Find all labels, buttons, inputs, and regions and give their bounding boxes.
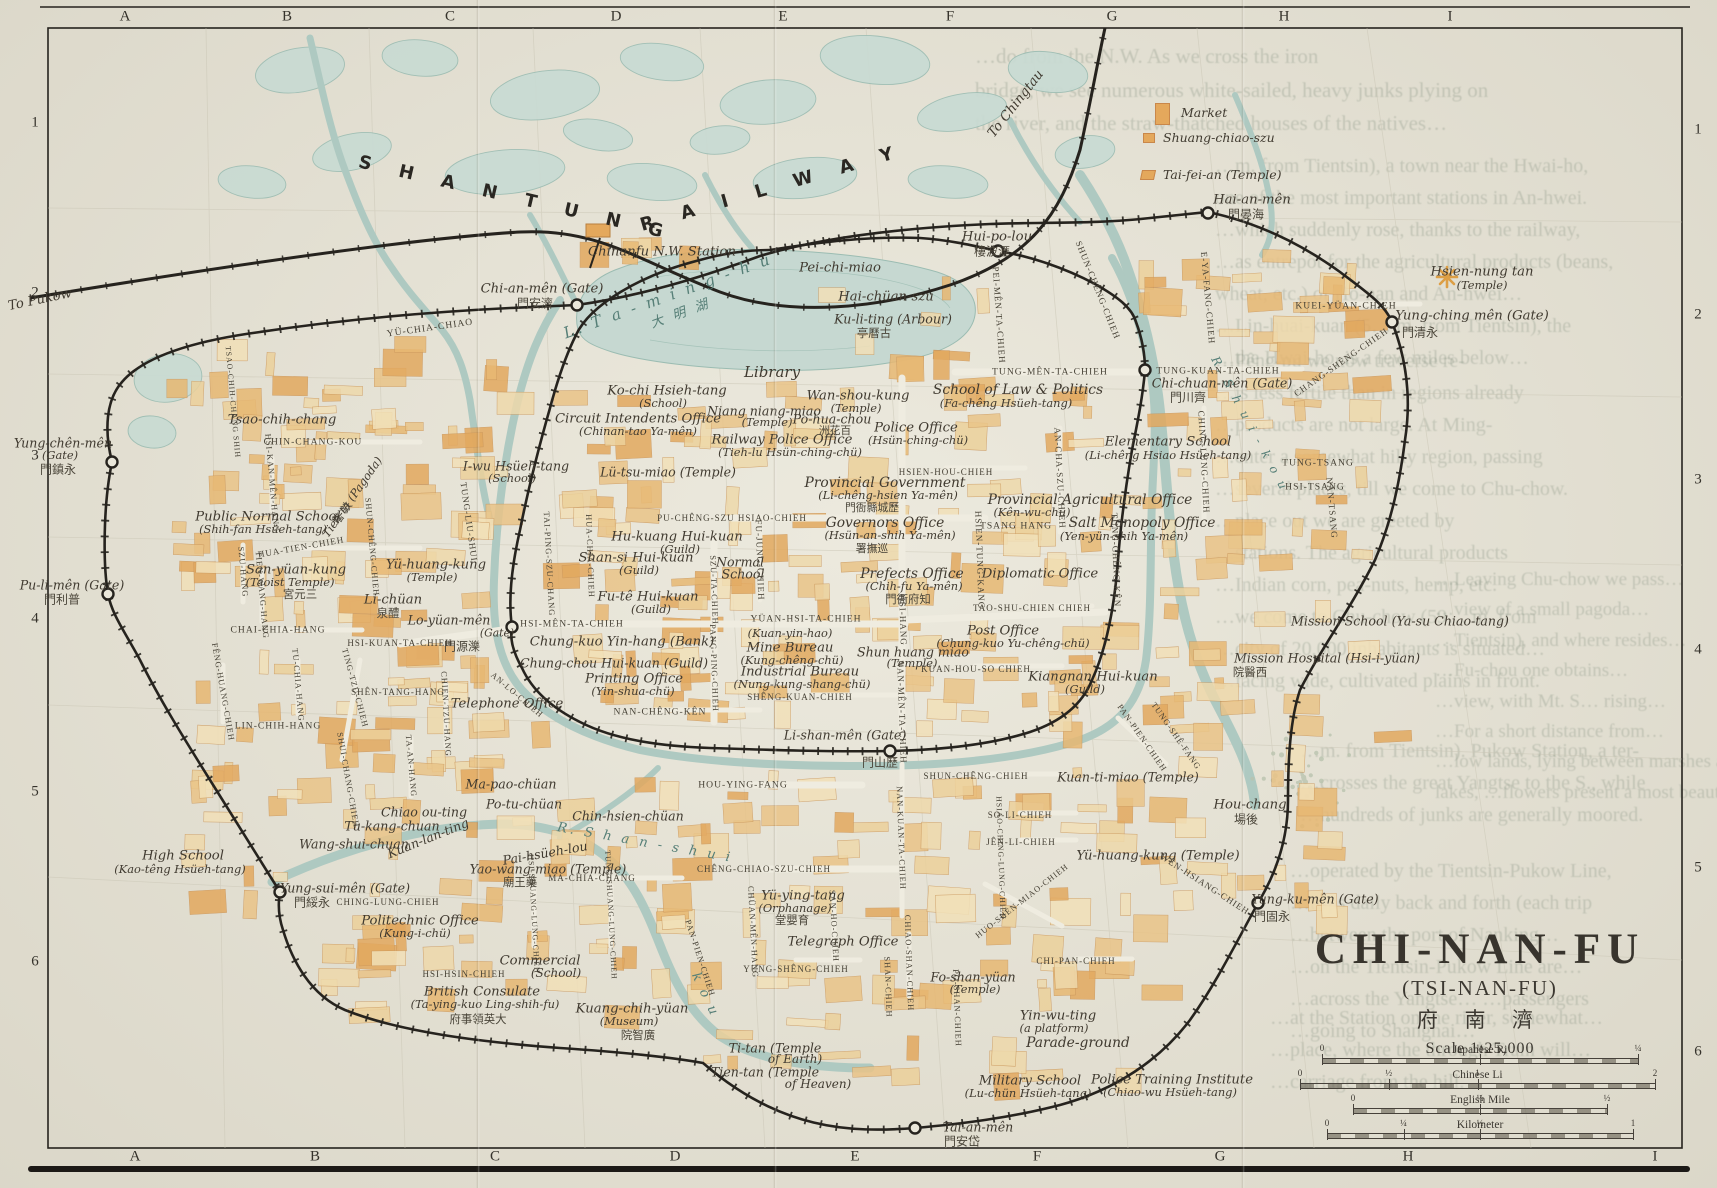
street-label: NAN-CHÊNG-KÊN [614, 707, 707, 718]
street-label: HSI-HSIN-CHIEH [423, 969, 506, 979]
scale-bar-value: ¼ [1477, 1093, 1484, 1103]
map-subtitle: (TSI-NAN-FU) [1290, 976, 1670, 1001]
grid-number: 2 [1694, 307, 1702, 324]
grid-letter: A [120, 9, 131, 26]
grid-letter: D [670, 1149, 681, 1166]
grid-letter: D [611, 9, 622, 26]
place-label: Ku-li-ting (Arbour) [834, 312, 952, 327]
scale-bar-tick [1322, 1054, 1323, 1065]
place-label: Library [744, 363, 800, 381]
temple-square-icon [1143, 133, 1155, 143]
scale-bar-tick [1607, 1104, 1608, 1115]
cjk-label: 門固永 [1254, 908, 1290, 925]
place-label: (Temple) [1457, 278, 1508, 292]
scale-bar-value: ¼ [1635, 1043, 1642, 1053]
scale-bar-tick [1655, 1079, 1656, 1090]
place-label: (Kuan-yin-hao) [748, 626, 833, 640]
street-label: SHÊNG-KUAN-CHIEH [747, 692, 853, 702]
grid-letter: H [1403, 1149, 1414, 1166]
scale-bar-value: 0 [1320, 1043, 1325, 1053]
market-building-icon [1155, 103, 1170, 125]
cjk-label: 門安濟 [517, 295, 553, 312]
street-label: MA-CHIA-CHANG [548, 873, 636, 883]
grid-number: 4 [1694, 642, 1702, 659]
street-label: HSIEN-HOU-CHIEH [899, 467, 994, 477]
scale-bar-value: 0 [1325, 1118, 1330, 1128]
place-label: (Nung-kung-shang-chü) [734, 677, 871, 691]
grid-letter: H [1279, 9, 1290, 26]
scale-bar-value: 0 [1298, 1068, 1303, 1078]
scale-bar-tick [1480, 1104, 1481, 1115]
cjk-label: 門晏海 [1228, 206, 1264, 223]
place-label: (Ta-ying-kuo Ling-shih-fu) [411, 997, 560, 1011]
place-label: (Guild) [1065, 682, 1105, 696]
scale-bar-tick [1327, 1129, 1328, 1140]
street-label: KUAN-HOU-SO CHIEH [921, 664, 1031, 674]
street-label: HSI-HANG [897, 594, 909, 646]
scale-bar-tick [1404, 1129, 1405, 1140]
scale-bar-value: 0 [1351, 1093, 1356, 1103]
street-label: LIN-CHIH-HANG [235, 721, 322, 732]
grid-number: 5 [31, 784, 39, 801]
legend-label: Shuang-chiao-szu [1163, 130, 1275, 145]
grid-number: 3 [31, 448, 39, 465]
scale-bar-value: ¼ [1400, 1118, 1407, 1128]
scale-bar-value: ⅛ [1477, 1043, 1484, 1053]
scale-bar-value: ½ [1477, 1118, 1484, 1128]
place-label: (Temple) [742, 415, 793, 429]
cjk-label: 泉醴 [377, 605, 400, 621]
place-label: (Yen-yün-shih Ya-mên) [1060, 529, 1188, 543]
place-label: (Guild) [619, 563, 659, 577]
place-label: Yü-huang-kung (Temple) [1076, 849, 1239, 864]
place-label: Ma-pao-chüan [466, 777, 557, 792]
place-label: (Museum) [600, 1014, 659, 1028]
cjk-label: 宮元三 [283, 586, 317, 602]
place-label: (Li-chêng Hsiao Hsüeh-tang) [1085, 448, 1251, 462]
place-label: (Chiao-wu Hsüeh-tang) [1103, 1085, 1237, 1099]
map-title-chinese: 府 南 濟 [1290, 1004, 1670, 1034]
cjk-label: 院智廣 [621, 1027, 655, 1043]
cjk-label: 門衙縣城歷 [845, 499, 899, 515]
place-label: (Fa-chêng Hsüeh-tang) [940, 396, 1072, 410]
place-label: Pei-chi-miao [799, 261, 881, 276]
scale-bar-tick [1638, 1054, 1639, 1065]
place-label: (Shih-fan Hsüeh-tang) [199, 522, 327, 536]
place-label: Parade-ground [1026, 1035, 1130, 1051]
scale-bar-value: 2 [1653, 1068, 1658, 1078]
scale-bar-tick [1478, 1079, 1479, 1090]
grid-letter: G [1107, 9, 1118, 26]
street-label: TUNG-MÊN-TA-CHIEH [992, 367, 1108, 378]
scale-bar-value: 1 [1631, 1118, 1636, 1128]
cjk-label: 門利普 [44, 591, 80, 608]
place-label: Kuan-ti-miao (Temple) [1057, 770, 1199, 785]
place-label: (Temple) [407, 570, 458, 584]
cjk-label: 樓波滙 [974, 243, 1010, 260]
place-label: (School) [531, 966, 581, 980]
place-label: (Kao-têng Hsüeh-tang) [114, 862, 246, 876]
street-label: PU-CHÊNG-SZU HSIAO-CHIEH [657, 513, 807, 523]
place-label: (Gate) [480, 627, 514, 640]
street-label: HSI-KUAN-TA-CHIEH [347, 638, 452, 648]
street-label: CHÊNG-CHIAO-SZU-CHIEH [697, 864, 831, 874]
cjk-label: 門清永 [1402, 324, 1438, 341]
street-label: TAO-SHU-CHIEN CHIEH [973, 603, 1091, 613]
place-label: (Guild) [631, 602, 671, 616]
grid-number: 4 [31, 611, 39, 628]
grid-number: 5 [1694, 860, 1702, 877]
temple-square-icon [1140, 170, 1156, 180]
place-label: Yung-ching mên (Gate) [1395, 309, 1548, 324]
grid-letter: C [445, 9, 455, 26]
scale-bar-tick [1480, 1129, 1481, 1140]
cjk-label: 堂嬰育 [775, 912, 809, 928]
place-label: (Kung-i-chü) [379, 926, 451, 940]
grid-number: 2 [31, 285, 39, 302]
scale-bar-tick [1353, 1104, 1354, 1115]
scale-bar-tick [1480, 1054, 1481, 1065]
map-title: CHI-NAN-FU [1290, 925, 1670, 974]
street-label: TUNG-TSANG [1282, 458, 1354, 469]
place-label: Telephone Office [451, 697, 564, 712]
place-label: (Tieh-lu Hsün-ching-chü) [718, 445, 862, 459]
street-label: SHUN-CHÊNG-CHIEH [924, 771, 1029, 781]
scale-bar-value: ½ [1385, 1068, 1392, 1078]
street-label: CHING-LUNG-CHIEH [337, 897, 440, 907]
street-label: CHI-PAN-CHIEH [1036, 956, 1115, 966]
place-label: Chung-chou Hui-kuan (Guild) [520, 656, 708, 671]
cjk-label: 府事領英大 [450, 1011, 507, 1027]
cjk-label: 場後 [1234, 811, 1258, 828]
grid-number: 1 [31, 115, 39, 132]
place-label: Chinanfu N.W. Station [588, 245, 736, 260]
street-label: HOU-YING-FANG [698, 780, 788, 791]
street-label: SHÊN-TANG-HANG [351, 687, 445, 697]
place-label: (Yin-shua-chü) [591, 684, 674, 698]
place-label: Lo-yüan-mên [408, 613, 491, 628]
cjk-label: 院醫西 [1233, 664, 1267, 680]
place-label: Mission School (Ya-su Chiao-tang) [1291, 614, 1509, 629]
grid-letter: C [490, 1149, 500, 1166]
cjk-label: 門山歷 [862, 754, 898, 771]
street-label: HSI-MÊN-TA-CHIEH [520, 619, 624, 630]
place-label: Lü-tsu-miao (Temple) [600, 465, 736, 480]
place-label: of Heaven) [785, 1077, 852, 1091]
place-label: Po-tu-chüan [486, 797, 562, 812]
grid-letter: I [1653, 1149, 1658, 1166]
scale-bar-tick [1300, 1079, 1301, 1090]
cjk-label: 門安岱 [944, 1133, 980, 1150]
grid-letter: F [1033, 1149, 1041, 1166]
grid-number: 3 [1694, 472, 1702, 489]
place-label: (Hsün-an-shih Ya-mên) [824, 528, 955, 542]
grid-letter: F [946, 9, 954, 26]
legend-label: Market [1181, 105, 1227, 120]
place-label: Chung-kuo Yin-hang (Bank) [530, 635, 715, 650]
legend-label: Tai-fei-an (Temple) [1163, 167, 1282, 182]
place-label: (Chinan-tao Ya-mên) [579, 424, 697, 438]
scale-bar-tick [1633, 1129, 1634, 1140]
grid-number: 6 [31, 954, 39, 971]
grid-letter: I [1448, 9, 1453, 26]
street-label: CHIN-CHANG-KOU [264, 437, 363, 448]
street-label: HSI-TSANG [1285, 482, 1345, 493]
street-label: CHAI-CHIA-HANG [230, 625, 325, 636]
place-label: (a platform) [1020, 1021, 1089, 1035]
place-label: Chiao ou-ting [381, 805, 467, 820]
street-label: KUEI-YÜAN-CHIEH [1295, 301, 1396, 312]
grid-number: 6 [1694, 1044, 1702, 1061]
map-sheet: …do from the N.W. As we cross the ironbr… [0, 0, 1717, 1188]
place-label: (School) [639, 396, 687, 410]
grid-letter: E [850, 1149, 859, 1166]
cjk-label: 署撫巡 [856, 540, 888, 556]
grid-letter: A [130, 1149, 141, 1166]
grid-letter: B [310, 1149, 320, 1166]
place-label: Li-shan-mên (Gate) [784, 728, 907, 743]
cjk-label: 門綏永 [294, 894, 330, 911]
grid-letter: E [778, 9, 787, 26]
cjk-label: 門鎮永 [40, 461, 76, 478]
place-label: Telegraph Office [788, 935, 899, 950]
place-label: Tsao-chih-chang [228, 413, 337, 428]
place-label: Hai-chüan-szu [838, 290, 933, 305]
place-label: (School) [488, 471, 536, 485]
place-label: Yung-ku-mên (Gate) [1251, 892, 1378, 907]
scale-bar-value: ½ [1604, 1093, 1611, 1103]
place-label: (Lu-chün Hsüeh-tang) [965, 1086, 1092, 1100]
street-label: YÜAN-HSI-TA-CHIEH [750, 614, 861, 625]
grid-letter: B [282, 9, 292, 26]
grid-number: 1 [1694, 122, 1702, 139]
scale-bar-tick [1389, 1079, 1390, 1090]
title-block: CHI-NAN-FU (TSI-NAN-FU) 府 南 濟 Scale 1:25… [1290, 925, 1670, 1058]
street-label: TSANG HANG [980, 521, 1052, 532]
cjk-label: 亭曆古 [857, 325, 891, 341]
place-label: Chin-hsien-chüan [572, 809, 683, 824]
grid-letter: G [1215, 1149, 1226, 1166]
cjk-label: 門川齊 [1170, 389, 1206, 406]
place-label: Diplomatic Office [982, 567, 1098, 582]
cjk-label: 門衙府知 [885, 591, 931, 607]
place-label: (Hsün-ching-chü) [868, 433, 968, 447]
scale-bar-value: 1 [1475, 1068, 1480, 1078]
